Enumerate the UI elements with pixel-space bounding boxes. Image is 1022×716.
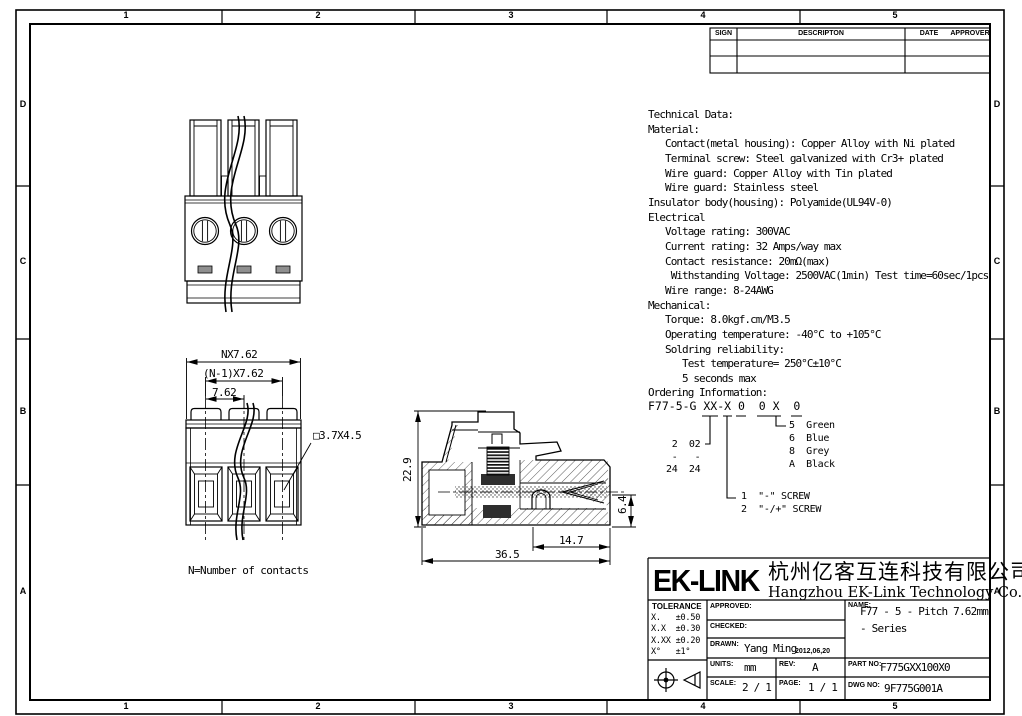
zone-label-bottom-3: 3	[481, 702, 541, 711]
page-label: PAGE:	[779, 680, 801, 687]
company-name-chinese: 杭州亿客互连科技有限公司	[768, 562, 1022, 583]
drawn-label: DRAWN:	[710, 641, 739, 648]
dim-square-3745: □3.7X4.5	[313, 430, 361, 441]
zone-label-top-4: 4	[673, 11, 733, 20]
front-view-drawing	[185, 116, 302, 312]
engineering-drawing-sheet: 1 2 3 4 5 1 2 3 4 5 D C B A D C B A SIGN…	[0, 0, 1022, 716]
drawn-value: Yang Ming	[744, 643, 796, 654]
part-no-label: PART NO:	[848, 661, 881, 668]
zone-label-top-5: 5	[865, 11, 925, 20]
zone-label-top-2: 2	[288, 11, 348, 20]
zone-label-right-c: C	[990, 257, 1004, 266]
approved-label: APPROVED:	[710, 603, 752, 610]
zone-label-top-1: 1	[96, 11, 156, 20]
units-value: mm	[744, 662, 756, 673]
dim-n1x762: (N-1)X7.62	[203, 368, 263, 379]
revision-col-sign: SIGN	[710, 30, 737, 37]
rev-value: A	[812, 662, 818, 673]
ordering-screw-options: 1 "-" SCREW 2 "-/+" SCREW	[741, 490, 821, 516]
centerlines	[206, 396, 283, 542]
ordering-ways-range: 2 02 - - 24 24	[666, 439, 700, 477]
revision-col-description: DESCRIPTON	[737, 30, 905, 37]
dim-147: 14.7	[559, 535, 583, 546]
zone-label-left-a: A	[16, 587, 30, 596]
tolerance-title: TOLERANCE	[652, 603, 702, 611]
name-value-line2: - Series	[860, 623, 907, 634]
dim-64: 6.4	[617, 496, 628, 514]
name-value-line1: F77 - 5 - Pitch 7.62mm	[860, 606, 988, 617]
dim-nx762: NX7.62	[221, 349, 257, 360]
dim-229: 22.9	[402, 458, 413, 482]
checked-label: CHECKED:	[710, 623, 747, 630]
bottom-view-drawing	[186, 396, 311, 542]
section-view-drawing	[422, 412, 624, 525]
ordering-code: F77-5-G XX-X 0 0 X 0	[648, 401, 800, 413]
drawn-date: 2012,06,20	[795, 648, 830, 655]
revision-col-date: DATE	[905, 30, 953, 37]
zone-label-bottom-5: 5	[865, 702, 925, 711]
zone-label-bottom-1: 1	[96, 702, 156, 711]
rev-label: REV:	[779, 661, 795, 668]
ordering-color-options: 5 Green 6 Blue 8 Grey A Black	[789, 419, 835, 471]
part-no-value: F775GXX100X0	[880, 662, 950, 673]
ordering-connector-lines	[702, 416, 802, 498]
scale-label: SCALE:	[710, 680, 736, 687]
zone-label-left-d: D	[16, 100, 30, 109]
company-logo: EK-LINK	[653, 565, 759, 596]
note-number-of-contacts: N=Number of contacts	[188, 565, 308, 576]
tolerance-values: X. ±0.50 X.X ±0.30 X.XX ±0.20 X° ±1°	[651, 613, 700, 659]
zone-label-right-d: D	[990, 100, 1004, 109]
zone-label-bottom-4: 4	[673, 702, 733, 711]
company-name-english: Hangzhou EK-Link Technology Co.,Ltd	[768, 586, 1022, 601]
dwg-no-value: 9F775G001A	[884, 683, 942, 694]
dim-365: 36.5	[495, 549, 519, 560]
projection-symbol-icon	[654, 668, 700, 692]
technical-notes: Technical Data: Material: Contact(metal …	[648, 108, 988, 401]
page-value: 1 / 1	[808, 682, 837, 693]
revision-col-approver: APPROVER	[950, 30, 990, 37]
zone-label-left-c: C	[16, 257, 30, 266]
dwg-no-label: DWG NO:	[848, 682, 880, 689]
units-label: UNITS:	[710, 661, 733, 668]
zone-label-bottom-2: 2	[288, 702, 348, 711]
scale-value: 2 / 1	[742, 682, 771, 693]
zone-label-right-b: B	[990, 407, 1004, 416]
dim-762: 7.62	[212, 387, 236, 398]
zone-label-left-b: B	[16, 407, 30, 416]
zone-label-top-3: 3	[481, 11, 541, 20]
